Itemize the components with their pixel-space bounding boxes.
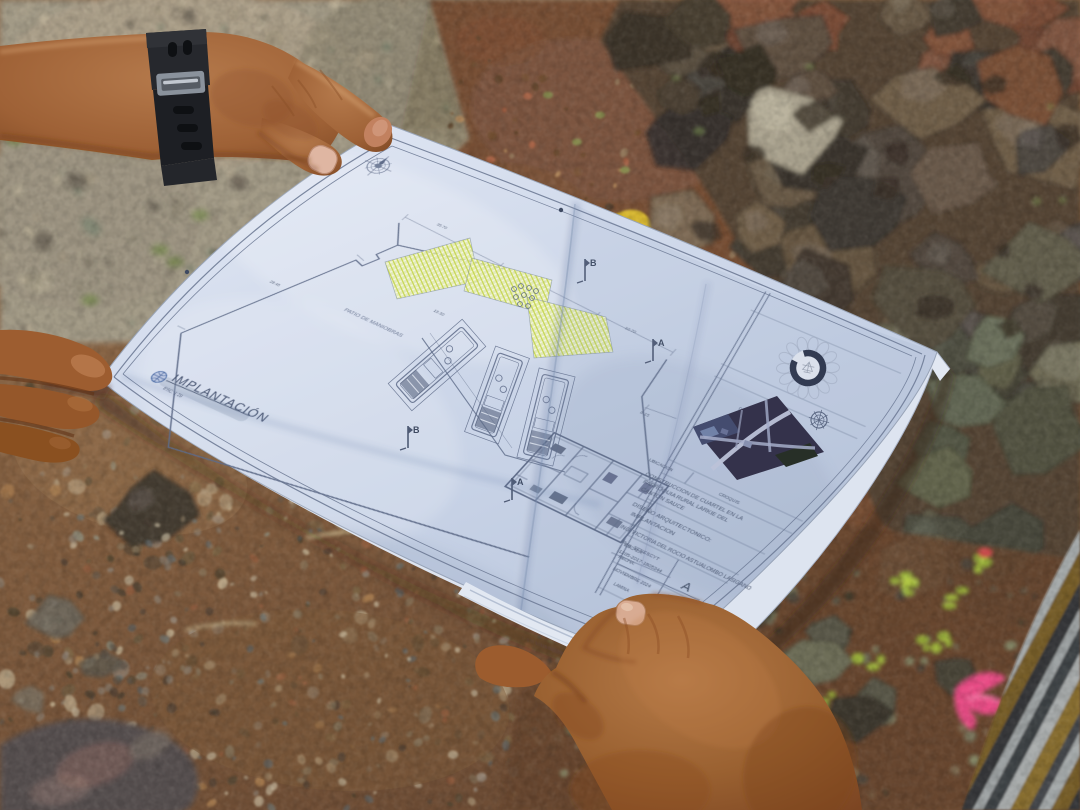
- svg-text:B: B: [413, 425, 420, 435]
